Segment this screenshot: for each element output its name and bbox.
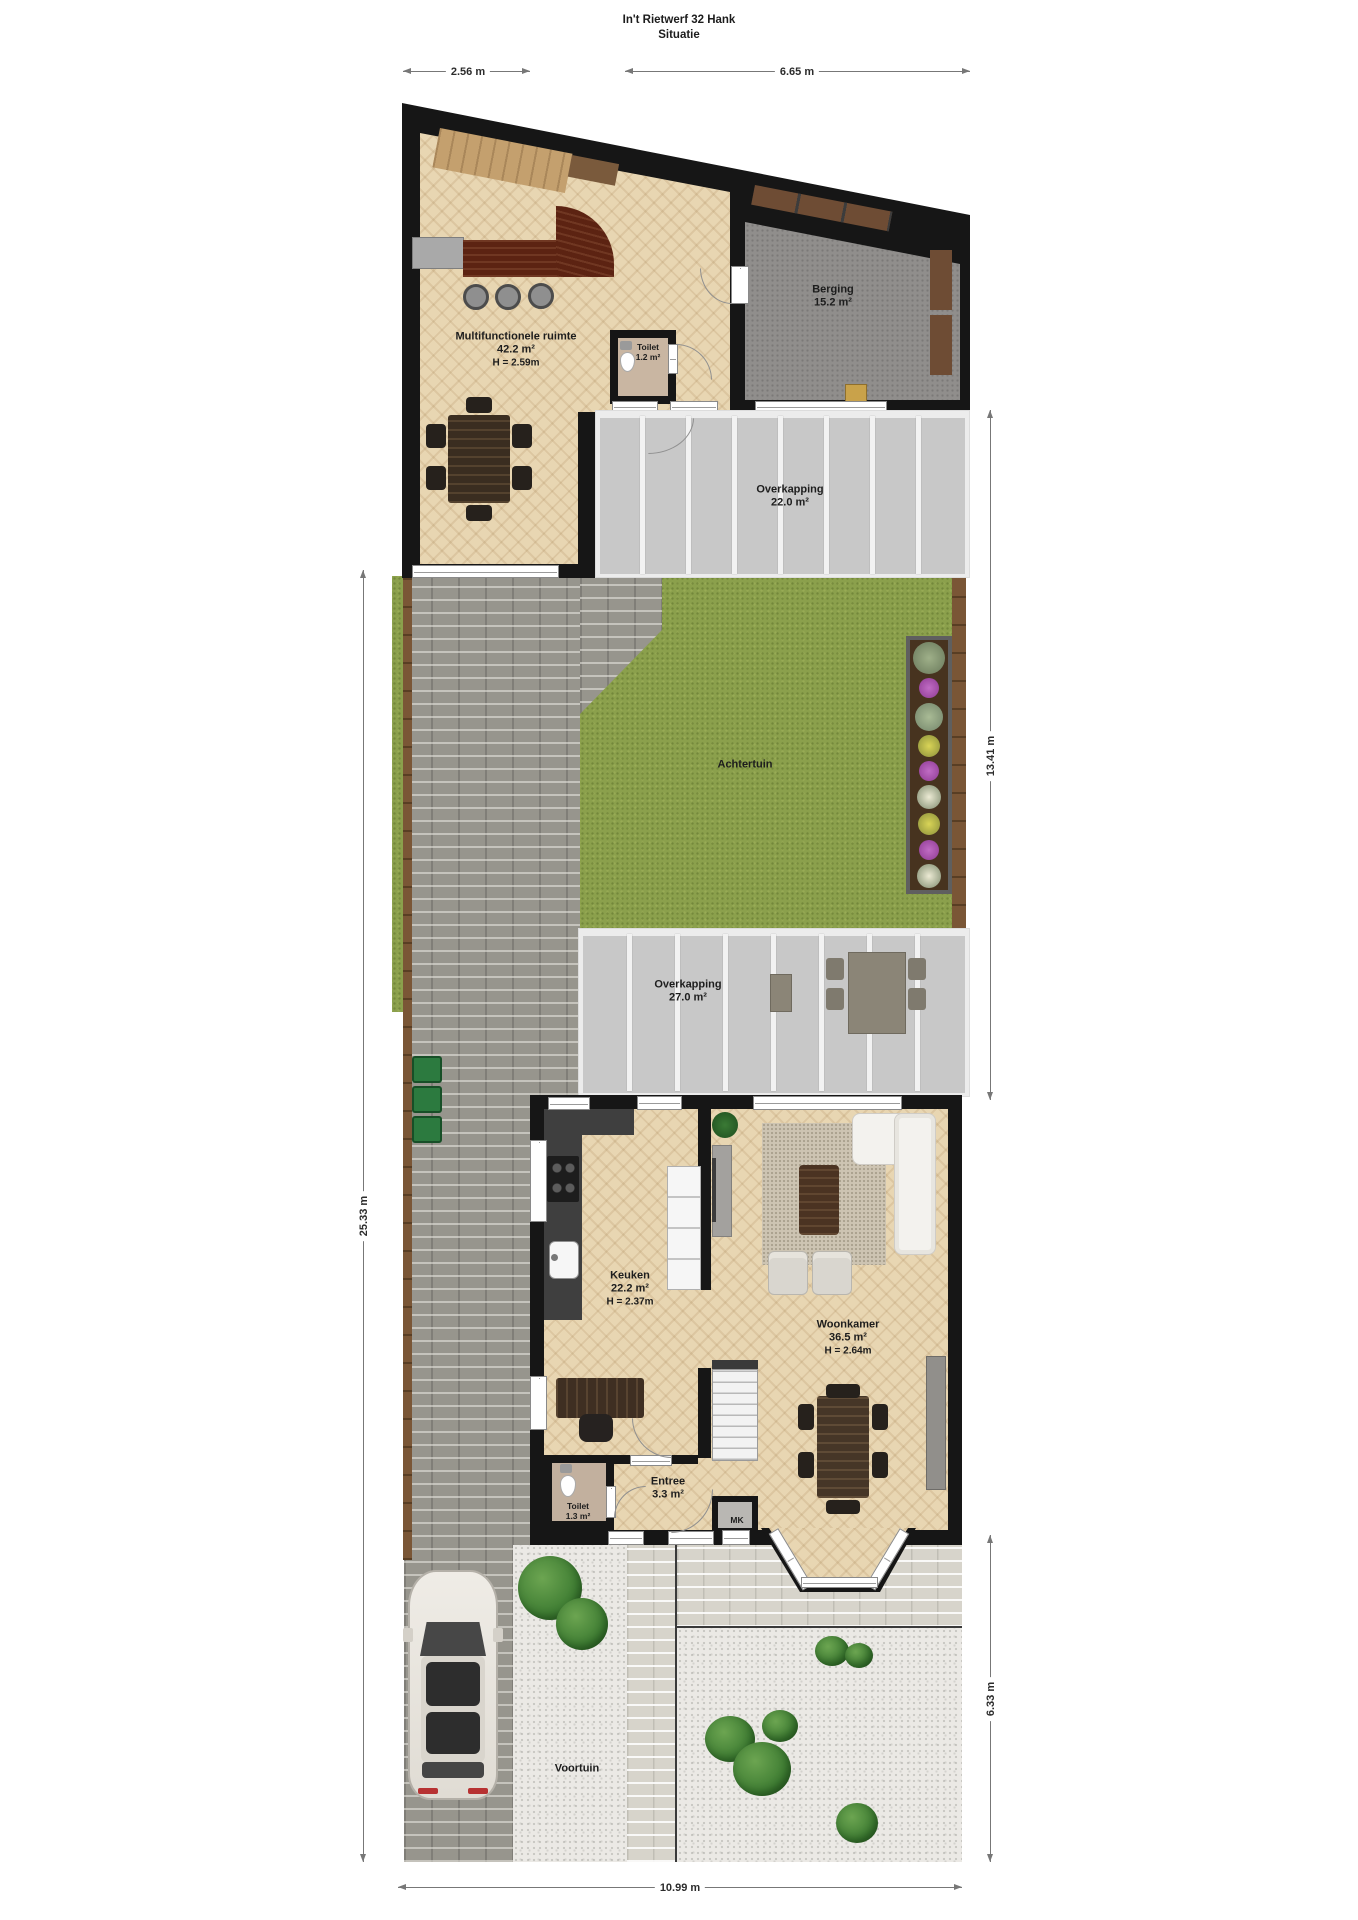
garden-chair <box>826 958 844 980</box>
garden-chair <box>826 988 844 1010</box>
storage-shelf <box>930 250 952 310</box>
window <box>412 565 559 578</box>
room-name: Entree <box>651 1476 685 1489</box>
plant-white-flower <box>917 785 941 809</box>
plant-purple-flower <box>919 761 939 781</box>
floorplan-canvas: In't Rietwerf 32 Hank Situatie <box>0 0 1358 1920</box>
room-label-achtertuin: Achtertuin <box>718 758 773 771</box>
plant-yellow-flower <box>918 735 940 757</box>
potted-plant <box>712 1112 738 1138</box>
driveway-wood-edge <box>403 576 412 1560</box>
plant-yellow-flower <box>918 813 940 835</box>
bush <box>556 1598 608 1650</box>
dimension-label-bottom: 10.99 m <box>655 1881 705 1895</box>
window <box>548 1097 590 1110</box>
room-area: 1.3 m² <box>566 1511 591 1521</box>
car-mirror-left <box>403 1628 413 1642</box>
dining-table <box>448 415 510 503</box>
bush <box>815 1636 849 1666</box>
room-name: Overkapping <box>756 484 823 497</box>
window <box>637 1096 682 1110</box>
front-walkway <box>627 1545 675 1862</box>
sofa <box>894 1113 936 1255</box>
stairs-landing <box>712 1360 758 1369</box>
dining-chair <box>512 424 532 448</box>
waste-bin <box>412 1086 442 1113</box>
desk <box>556 1378 644 1418</box>
car-windshield <box>420 1622 486 1656</box>
roof-beam <box>771 934 776 1091</box>
storage-shelf <box>930 315 952 375</box>
plan-title: In't Rietwerf 32 Hank Situatie <box>0 13 1358 43</box>
plant-white-flower <box>917 864 941 888</box>
garden-bench <box>770 974 792 1012</box>
roof-beam <box>732 416 737 574</box>
dimension-label-right-lower: 6.33 m <box>984 1677 998 1721</box>
dining-chair <box>466 397 492 413</box>
armchair <box>812 1251 852 1295</box>
room-name: Achtertuin <box>718 758 773 771</box>
room-name: Berging <box>812 284 854 297</box>
cooktop <box>547 1156 579 1202</box>
plant-purple-flower <box>919 840 939 860</box>
parked-car <box>408 1570 498 1800</box>
waste-bin <box>412 1056 442 1083</box>
room-area: 36.5 m² <box>829 1332 867 1345</box>
garden-chair <box>908 958 926 980</box>
plan-title-subtitle: Situatie <box>0 28 1358 43</box>
faucet <box>551 1254 558 1261</box>
room-area: 27.0 m² <box>669 992 707 1005</box>
roof-beam <box>686 416 691 574</box>
plant-purple-flower <box>919 678 939 698</box>
room-label-multifunctionele-ruimte: Multifunctionele ruimte 42.2 m² H = 2.59… <box>456 331 577 370</box>
dining-chair <box>872 1404 888 1430</box>
bar-stool <box>528 283 554 309</box>
kitchen-cabinet <box>667 1166 701 1290</box>
room-area: 1.2 m² <box>636 352 661 362</box>
dining-chair <box>512 466 532 490</box>
bar-stool <box>463 284 489 310</box>
dimension-label-left: 25.33 m <box>357 1191 371 1241</box>
boundary-line-vertical <box>675 1545 677 1862</box>
roof-beam <box>723 934 728 1091</box>
dining-chair <box>798 1452 814 1478</box>
roof-beam <box>627 934 632 1091</box>
tv-screen <box>712 1158 716 1222</box>
roof-beam <box>675 934 680 1091</box>
room-name: MK <box>730 1515 743 1525</box>
bush <box>836 1803 878 1843</box>
plant-sage-shrub <box>915 703 943 731</box>
toilet-cistern <box>620 341 632 350</box>
dimension-label-right-upper: 13.41 m <box>984 731 998 781</box>
garden-fence-right <box>952 576 966 934</box>
dining-table <box>817 1396 869 1498</box>
room-area: 15.2 m² <box>814 297 852 310</box>
window <box>530 1376 547 1430</box>
berging-door-opening <box>731 266 749 304</box>
car-mirror-right <box>493 1628 503 1642</box>
room-label-woonkamer: Woonkamer 36.5 m² H = 2.64m <box>817 1319 880 1358</box>
garden-table <box>848 952 906 1034</box>
roof-beam <box>870 416 875 574</box>
room-label-toilet-beneden: Toilet 1.3 m² <box>566 1501 591 1521</box>
bush <box>845 1643 873 1668</box>
room-name: Multifunctionele ruimte <box>456 331 577 344</box>
roof-beam <box>824 416 829 574</box>
plan-title-address: In't Rietwerf 32 Hank <box>0 13 1358 28</box>
room-label-toilet-boven: Toilet 1.2 m² <box>636 342 661 362</box>
dimension-label-top-right: 6.65 m <box>775 65 819 79</box>
desk-chair <box>579 1414 613 1442</box>
storage-box <box>845 384 867 402</box>
room-ceiling-height: H = 2.64m <box>825 1345 872 1357</box>
window <box>608 1531 644 1545</box>
sideboard <box>926 1356 946 1490</box>
roof-beam <box>819 934 824 1091</box>
room-area: 22.0 m² <box>771 497 809 510</box>
room-label-overkapping-1: Overkapping 22.0 m² <box>756 484 823 511</box>
dimension-label-top-left: 2.56 m <box>446 65 490 79</box>
window <box>530 1140 547 1222</box>
room-ceiling-height: H = 2.59m <box>493 357 540 369</box>
car-sunroof-front <box>426 1662 480 1706</box>
bay-window-frame <box>801 1577 878 1588</box>
car-taillight-right <box>468 1788 488 1794</box>
dining-chair <box>826 1384 860 1398</box>
room-name: Voortuin <box>555 1762 599 1775</box>
dining-chair <box>826 1500 860 1514</box>
room-label-meterkast: MK <box>730 1515 743 1525</box>
room-area: 22.2 m² <box>611 1283 649 1296</box>
room-label-keuken: Keuken 22.2 m² H = 2.37m <box>607 1270 654 1309</box>
room-name: Toilet <box>637 342 659 352</box>
bush <box>762 1710 798 1742</box>
dining-chair <box>872 1452 888 1478</box>
room-name: Woonkamer <box>817 1319 880 1332</box>
bush <box>733 1742 791 1796</box>
room-area: 3.3 m² <box>652 1489 684 1502</box>
garden-chair <box>908 988 926 1010</box>
room-label-overkapping-2: Overkapping 27.0 m² <box>654 979 721 1006</box>
waste-bin <box>412 1116 442 1143</box>
coffee-table <box>799 1165 839 1235</box>
room-area: 42.2 m² <box>497 344 535 357</box>
room-name: Toilet <box>567 1501 589 1511</box>
staircase <box>712 1369 758 1461</box>
plant-agave <box>913 642 945 674</box>
dining-chair <box>426 424 446 448</box>
kitchen-counter-top <box>544 1109 634 1135</box>
room-label-voortuin: Voortuin <box>555 1762 599 1775</box>
toilet-cistern <box>560 1464 572 1473</box>
sliding-door <box>753 1096 902 1110</box>
roof-beam <box>916 416 921 574</box>
room-label-berging: Berging 15.2 m² <box>812 284 854 311</box>
partition-wall <box>698 1368 711 1458</box>
roof-beam <box>640 416 645 574</box>
car-sunroof-rear <box>426 1712 480 1754</box>
bar-counter <box>463 240 563 277</box>
front-door <box>668 1531 714 1545</box>
car-rear-window <box>422 1762 484 1778</box>
car-taillight-left <box>418 1788 438 1794</box>
room-name: Overkapping <box>654 979 721 992</box>
bar-stool <box>495 284 521 310</box>
room-label-entree: Entree 3.3 m² <box>651 1476 685 1503</box>
dining-chair <box>426 466 446 490</box>
room-name: Keuken <box>610 1270 650 1283</box>
room-ceiling-height: H = 2.37m <box>607 1296 654 1308</box>
boundary-line-horizontal <box>677 1626 962 1628</box>
flower-bed <box>906 636 952 894</box>
meterkast-door <box>722 1530 750 1545</box>
dining-chair <box>798 1404 814 1430</box>
side-table <box>412 237 464 269</box>
armchair <box>768 1251 808 1295</box>
dining-chair <box>466 505 492 521</box>
